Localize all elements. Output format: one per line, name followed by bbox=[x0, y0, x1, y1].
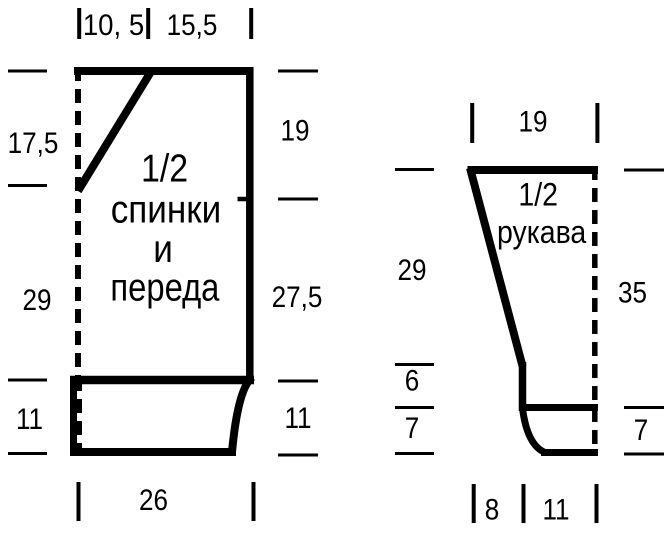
svg-text:1/2: 1/2 bbox=[141, 146, 188, 190]
svg-text:35: 35 bbox=[618, 276, 647, 309]
svg-text:29: 29 bbox=[397, 253, 426, 286]
svg-text:7: 7 bbox=[634, 413, 649, 446]
svg-text:15,5: 15,5 bbox=[167, 8, 218, 41]
svg-text:11: 11 bbox=[16, 402, 43, 435]
svg-text:19: 19 bbox=[280, 114, 309, 147]
svg-text:7: 7 bbox=[405, 411, 420, 444]
svg-text:спинки: спинки bbox=[111, 187, 221, 231]
svg-text:29: 29 bbox=[22, 283, 51, 316]
svg-text:рукава: рукава bbox=[497, 216, 586, 251]
svg-text:6: 6 bbox=[405, 364, 420, 397]
svg-text:10, 5: 10, 5 bbox=[83, 9, 144, 42]
svg-text:переда: переда bbox=[110, 265, 220, 309]
svg-text:11: 11 bbox=[284, 401, 311, 434]
svg-text:19: 19 bbox=[518, 105, 547, 138]
svg-text:1/2: 1/2 bbox=[518, 178, 558, 213]
svg-text:17,5: 17,5 bbox=[8, 126, 59, 159]
svg-text:27,5: 27,5 bbox=[272, 280, 323, 313]
svg-text:11: 11 bbox=[542, 493, 569, 526]
svg-text:26: 26 bbox=[139, 483, 168, 516]
svg-text:8: 8 bbox=[485, 493, 500, 526]
